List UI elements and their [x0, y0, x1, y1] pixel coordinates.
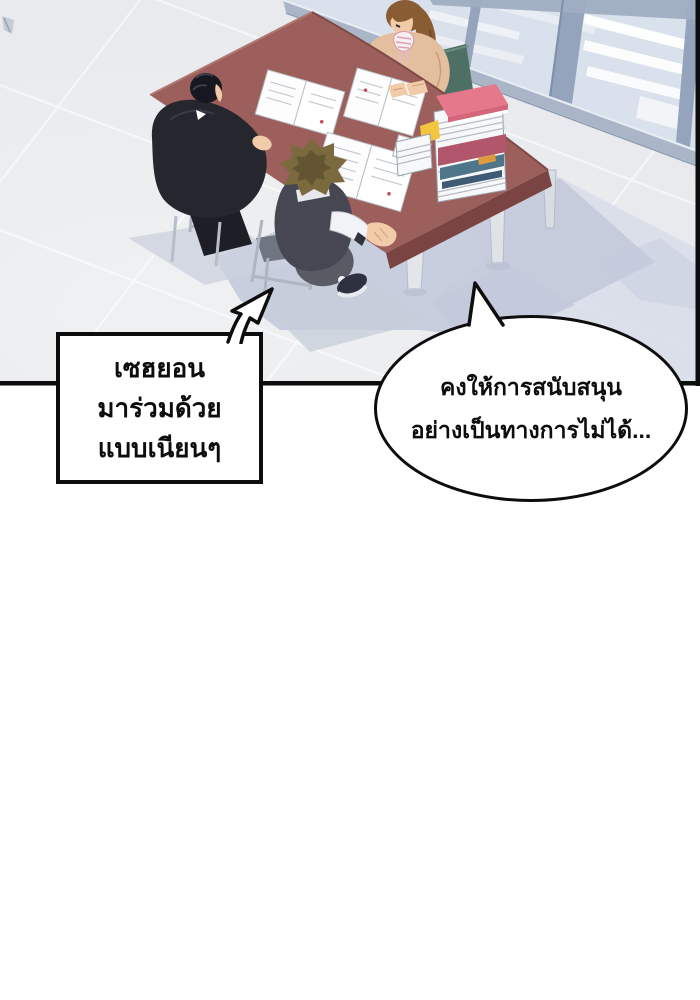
narration-line: มาร่วมด้วย: [97, 388, 221, 428]
narration-line: แบบเนียนๆ: [98, 428, 221, 468]
speech-bubble: คงให้การสนับสนุน อย่างเป็นทางการไม่ได้..…: [374, 315, 688, 502]
pointer-arrow: [221, 284, 279, 344]
narration-line: เซฮยอน: [114, 348, 205, 388]
speech-bubble-line: อย่างเป็นทางการไม่ได้...: [411, 409, 652, 452]
book-stack-left: [396, 134, 432, 176]
narration-box: เซฮยอน มาร่วมด้วย แบบเนียนๆ: [56, 332, 263, 484]
speech-bubble-tail: [462, 279, 508, 327]
speech-bubble-line: คงให้การสนับสนุน: [440, 366, 622, 409]
webtoon-page: คงให้การสนับสนุน อย่างเป็นทางการไม่ได้..…: [0, 0, 700, 1000]
